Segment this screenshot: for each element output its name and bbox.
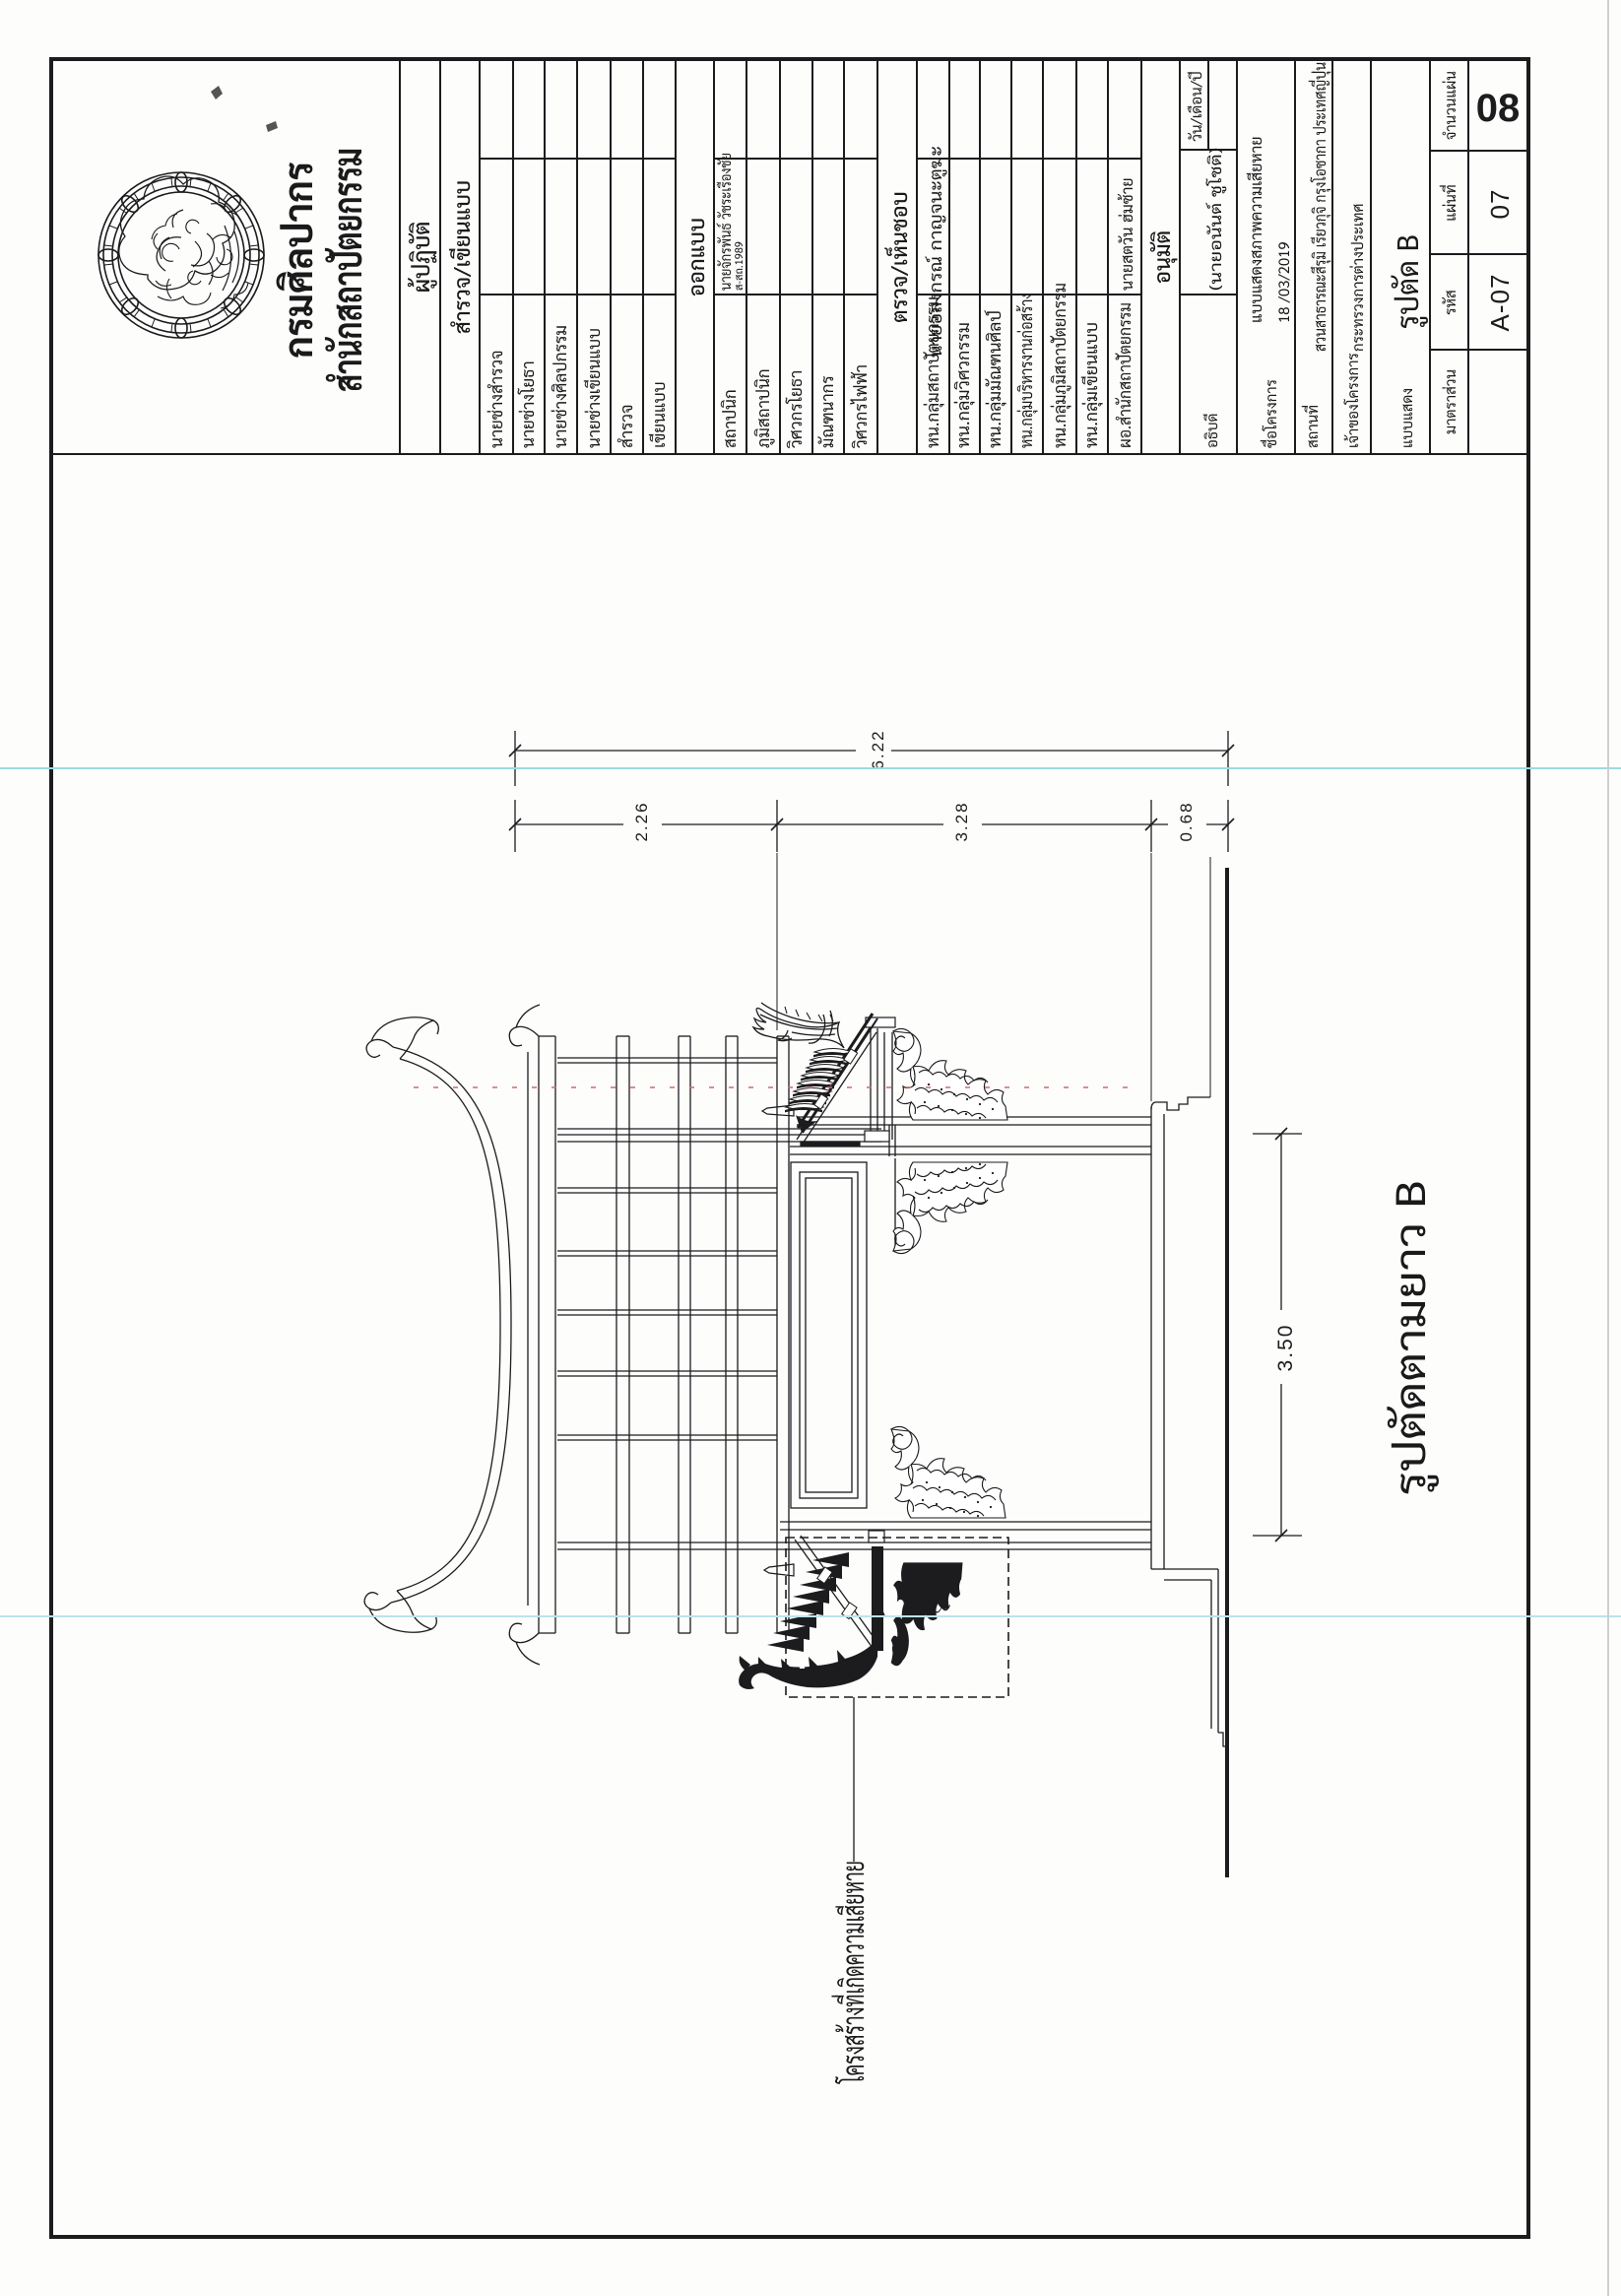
- svg-text:3.28: 3.28: [952, 801, 971, 841]
- svg-text:07: 07: [1485, 189, 1515, 220]
- svg-text:A-07: A-07: [1485, 274, 1515, 332]
- svg-text:2.26: 2.26: [632, 801, 651, 841]
- svg-text:6.22: 6.22: [869, 729, 887, 769]
- svg-text:0.68: 0.68: [1177, 801, 1196, 841]
- svg-text:3.50: 3.50: [1274, 1324, 1297, 1372]
- svg-text:08: 08: [1476, 87, 1521, 130]
